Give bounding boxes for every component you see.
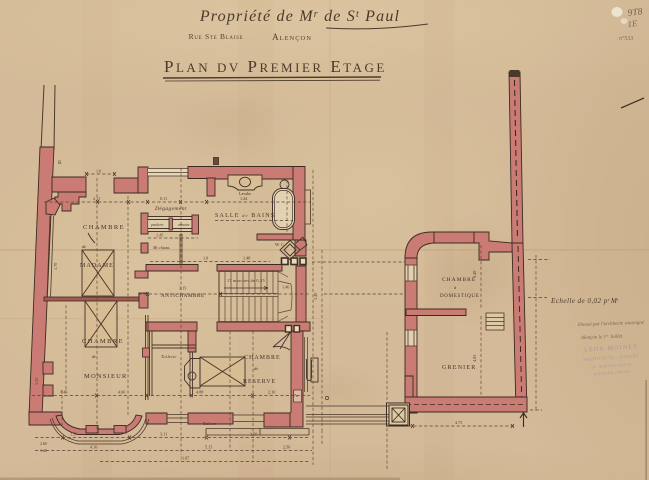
svg-text:4.10: 4.10	[90, 445, 97, 450]
svg-text:1.0: 1.0	[96, 169, 101, 174]
svg-text:Mr. chauss.: Mr. chauss.	[152, 246, 170, 250]
svg-text:GRENIER: GRENIER	[442, 365, 476, 371]
svg-text:Balcon: Balcon	[203, 421, 217, 426]
svg-text:penderie: penderie	[150, 223, 164, 227]
svg-text:2.50: 2.50	[283, 445, 290, 450]
svg-text:CHAMBRE: CHAMBRE	[244, 355, 281, 361]
svg-text:4.05: 4.05	[472, 355, 477, 362]
svg-text:1.40: 1.40	[40, 449, 47, 453]
svg-text:1.35: 1.35	[34, 378, 39, 385]
svg-text:4.88: 4.88	[196, 390, 203, 395]
svg-text:1.0: 1.0	[203, 256, 208, 261]
svg-text:CHAMBRE: CHAMBRE	[83, 224, 125, 231]
svg-text:RESERVE: RESERVE	[243, 379, 276, 385]
svg-text:2.50: 2.50	[250, 432, 257, 437]
svg-text:1.44: 1.44	[240, 196, 248, 201]
svg-text:CHAMBRE: CHAMBRE	[82, 338, 124, 345]
svg-text:5.15: 5.15	[205, 445, 212, 450]
svg-text:3.15: 3.15	[179, 286, 186, 291]
svg-text:PLAN DV PREMIER ETAGE: PLAN DV PREMIER ETAGE	[164, 57, 387, 76]
svg-text:7a: 7a	[294, 394, 298, 398]
svg-text:1.46: 1.46	[282, 285, 289, 290]
svg-text:de: de	[82, 244, 86, 249]
svg-text:DOMESTIQUE: DOMESTIQUE	[440, 294, 480, 299]
svg-text:Propriété de Mr de St Paul: Propriété de Mr de St Paul	[199, 8, 400, 25]
svg-text:armoire: armoire	[178, 223, 190, 227]
svg-text:MONSIEUR: MONSIEUR	[84, 373, 128, 380]
svg-text:3.40: 3.40	[313, 293, 318, 300]
svg-text:Toilette: Toilette	[161, 354, 177, 359]
svg-text:2.60: 2.60	[40, 442, 47, 446]
svg-text:0.11: 0.11	[160, 196, 167, 201]
svg-text:1.48: 1.48	[243, 256, 250, 261]
svg-text:de: de	[92, 354, 96, 359]
svg-text:2.11: 2.11	[93, 196, 100, 201]
svg-text:W.C: W.C	[275, 242, 284, 247]
svg-text:3.11: 3.11	[160, 432, 167, 437]
svg-text:Dégagement: Dégagement	[154, 206, 187, 212]
svg-text:1.70: 1.70	[53, 263, 58, 270]
svg-text:1.50: 1.50	[70, 432, 77, 437]
svg-text:3.40: 3.40	[472, 271, 477, 278]
svg-text:4.75: 4.75	[455, 420, 462, 425]
svg-text:n°533: n°533	[619, 35, 633, 42]
svg-text:2.10: 2.10	[268, 390, 275, 395]
svg-text:4.60: 4.60	[118, 390, 125, 395]
svg-text:1.45: 1.45	[60, 390, 67, 395]
svg-text:11.07: 11.07	[180, 456, 189, 461]
svg-text:de: de	[254, 366, 258, 371]
svg-text:1.45: 1.45	[156, 233, 163, 238]
